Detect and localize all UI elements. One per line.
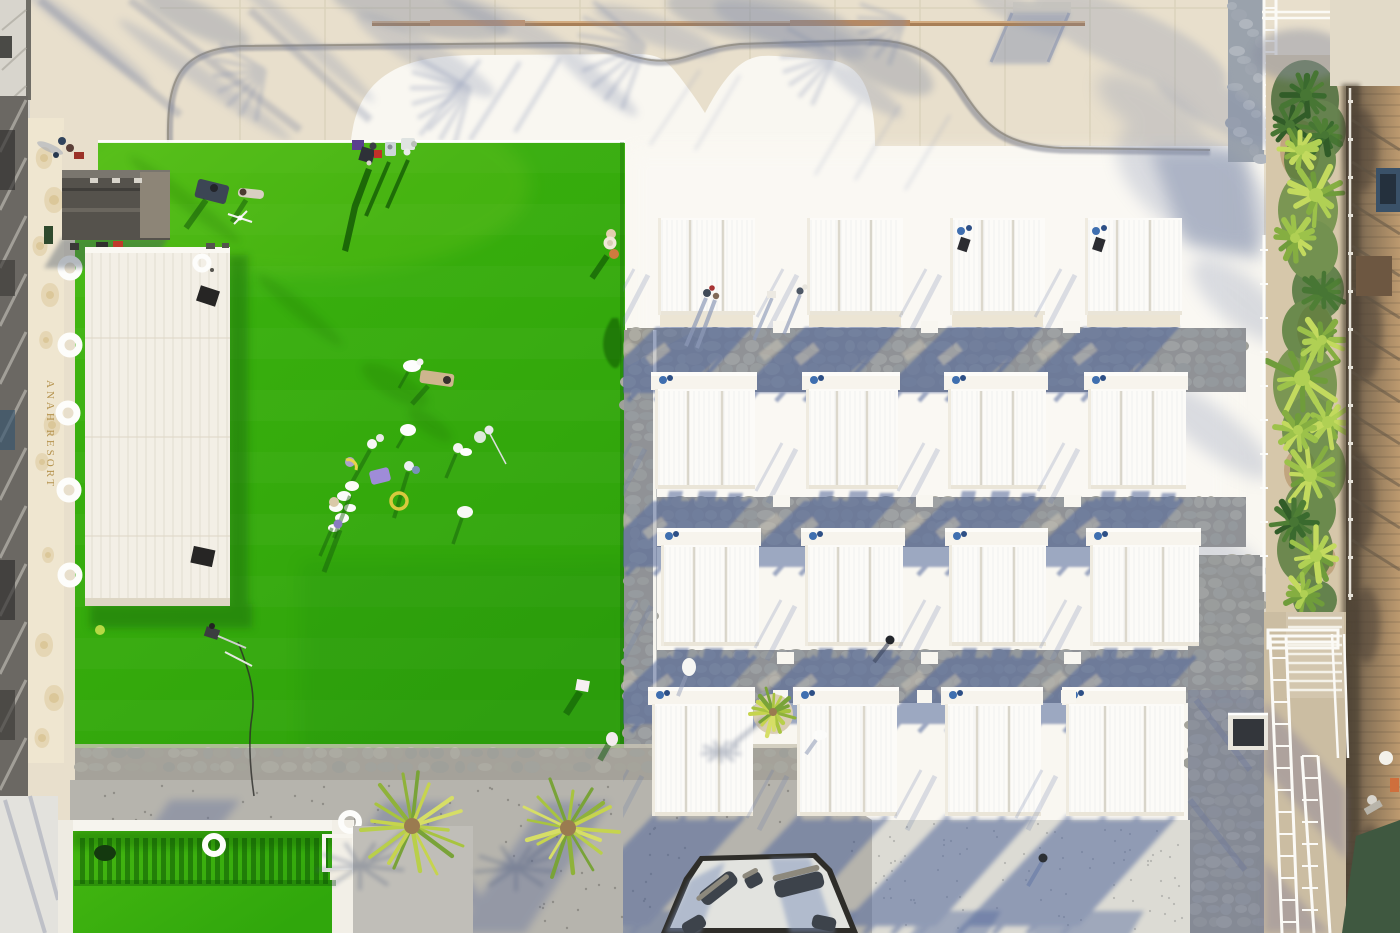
svg-text:ANAH RESORT: ANAH RESORT	[44, 380, 56, 489]
